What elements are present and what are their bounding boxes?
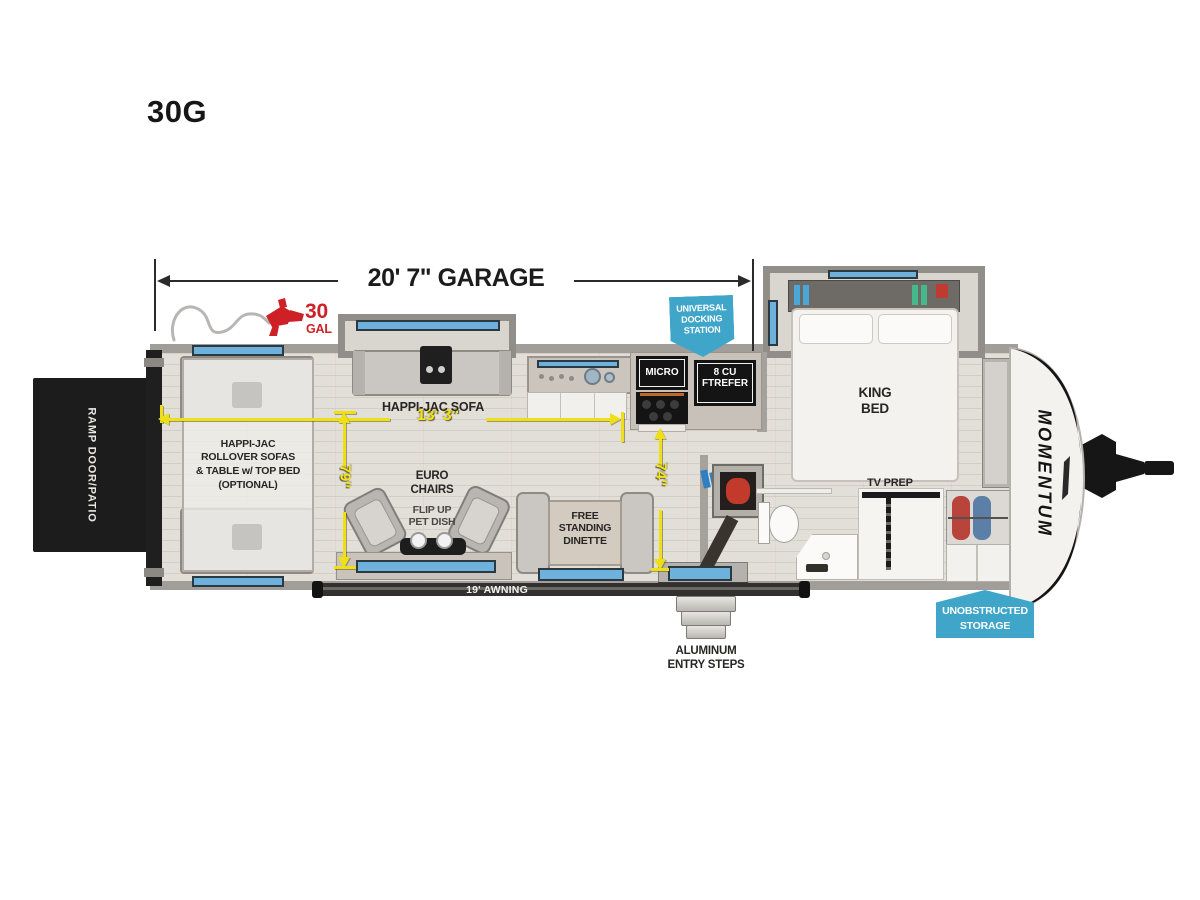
headboard-accent	[936, 284, 948, 298]
toilet-bowl	[769, 505, 799, 543]
shower-faucet	[806, 564, 828, 572]
awning-end-cap	[312, 581, 323, 598]
headboard-bottle	[794, 285, 800, 305]
ramp-door-label: RAMP DOOR/PATIO	[86, 407, 98, 522]
entry-step	[681, 611, 731, 626]
fireplace-flame	[726, 478, 750, 504]
awning-bar	[316, 583, 806, 596]
kitchen-sink	[584, 368, 601, 385]
garage-dimension-label: 20' 7" GARAGE	[336, 264, 576, 294]
stove-burner	[656, 400, 665, 409]
rollover-option-overlay: HAPPI-JAC ROLLOVER SOFAS & TABLE w/ TOP …	[182, 358, 314, 572]
pet-dish	[436, 532, 453, 549]
garage-window-bottom	[192, 576, 284, 587]
microwave: MICRO	[636, 356, 688, 390]
entry-door-window	[668, 566, 732, 581]
pet-dish-label: FLIP UPPET DISH	[396, 504, 468, 529]
tv-bracket-post	[886, 498, 891, 570]
dimension-79-label: 79"	[330, 468, 360, 512]
closet-shelf-divider	[976, 545, 978, 581]
stove-burner	[663, 412, 672, 421]
garage-window-top	[192, 345, 284, 356]
stove-knob	[539, 374, 544, 379]
pillow	[878, 314, 952, 344]
garage-hinge	[144, 568, 164, 577]
cabinet-divider	[560, 393, 561, 419]
refrigerator: 8 CU FTREFER	[694, 360, 756, 406]
stove-burner	[670, 400, 679, 409]
living-bench-window	[356, 560, 496, 573]
dresser-top	[985, 362, 1007, 484]
garage-hinge	[144, 358, 164, 367]
cupholder	[438, 366, 445, 373]
pillow	[799, 314, 873, 344]
kitchen-window	[537, 360, 619, 368]
king-bed-label: KINGBED	[830, 385, 920, 417]
headboard-bottle	[803, 285, 809, 305]
kitchen-sink-small	[604, 372, 615, 383]
stove-knob	[569, 376, 574, 381]
fuel-pump-icon	[254, 296, 308, 338]
awning-label: 19' AWNING	[437, 584, 557, 596]
tv-bracket-bar	[862, 492, 940, 498]
cabinet-divider	[594, 393, 595, 419]
garage-left-frame	[146, 350, 162, 586]
stove-knob	[559, 374, 564, 379]
sofa-slideout-window	[356, 320, 500, 331]
happijac-sofa-label: HAPPI-JAC SOFA	[372, 400, 494, 415]
fuel-capacity-unit: GAL	[306, 322, 332, 337]
headboard-bottle	[912, 285, 918, 305]
shower-drain	[822, 552, 830, 560]
entry-step	[676, 596, 736, 612]
dinette-seat-left	[516, 492, 550, 574]
brand-logo: MOMENTUM	[1012, 378, 1076, 568]
dimension-74-label: 74"	[646, 466, 676, 510]
bath-inner-wall	[756, 488, 832, 494]
closet-rod	[948, 517, 1008, 519]
floorplan-canvas: 30G 20' 7" GARAGE 30 GAL KINGBED	[0, 0, 1200, 900]
stove-burner	[649, 412, 658, 421]
stove-knob	[549, 376, 554, 381]
stove-accent	[640, 393, 684, 396]
ramp-door: RAMP DOOR/PATIO	[33, 378, 151, 552]
bed-slideout-window-left	[768, 300, 778, 346]
dinette-label: FREESTANDINGDINETTE	[546, 510, 624, 547]
bed-slideout-window-top	[828, 270, 918, 279]
cupholder	[426, 366, 433, 373]
pet-dish	[410, 532, 427, 549]
awning-end-cap	[799, 581, 810, 598]
dinette-window	[538, 568, 624, 581]
stove-burner	[642, 400, 651, 409]
happijac-sofa-armrest	[499, 351, 511, 395]
happijac-sofa-table	[420, 346, 452, 384]
page-title: 30G	[147, 94, 207, 131]
entry-step	[686, 625, 726, 639]
tv-prep-label: TV PREP	[856, 477, 924, 490]
tv-cabinet	[858, 488, 944, 580]
brand-logo-text: MOMENTUM	[1034, 409, 1055, 537]
closet-shelves	[946, 544, 1010, 582]
entry-steps-label: ALUMINUMENTRY STEPS	[650, 645, 762, 672]
happijac-sofa-armrest	[353, 351, 365, 395]
rollover-option-label: HAPPI-JAC ROLLOVER SOFAS & TABLE w/ TOP …	[196, 438, 300, 493]
euro-chairs-label: EUROCHAIRS	[397, 470, 467, 497]
headboard-bottle	[921, 285, 927, 305]
